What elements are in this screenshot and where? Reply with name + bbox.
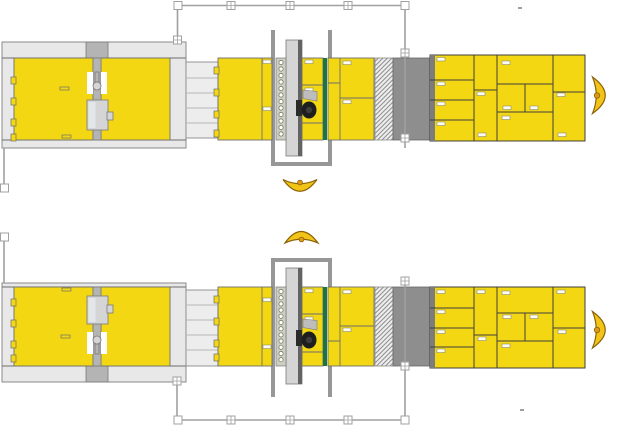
rotation-indicator: [283, 180, 317, 192]
layout-svg: [0, 0, 638, 446]
buffer-panel: [218, 58, 272, 140]
press-panel-left: [14, 58, 93, 140]
rail-corner: [401, 2, 409, 10]
press-carriage-inner: [89, 102, 96, 128]
press-head-block: [86, 366, 108, 382]
edge-tab: [11, 134, 16, 141]
rail-clamp: [286, 2, 294, 10]
edge-tab: [214, 340, 219, 347]
anchor-square: [1, 233, 9, 241]
drill-hole: [279, 320, 283, 324]
drill-hole: [279, 112, 283, 116]
rail-corner: [174, 2, 182, 10]
clamp-block: [296, 100, 302, 116]
label-tick: [305, 289, 313, 293]
panel-buffer: [214, 58, 272, 140]
drill-hole: [279, 314, 283, 318]
panel-slot: [61, 335, 70, 338]
drilling-gantry-station: [276, 40, 327, 156]
drill-hole: [279, 358, 283, 362]
edge-tab: [214, 318, 219, 325]
drill-hole: [279, 302, 283, 306]
press-head-block: [86, 42, 108, 58]
edge-tab: [11, 355, 16, 362]
outfeed-panels: [328, 58, 374, 140]
turning-device: [593, 77, 606, 114]
rotation-hub: [299, 237, 304, 242]
stray-mark: [520, 409, 524, 411]
edge-tab: [11, 299, 16, 306]
drilling-gantry-station: [276, 268, 327, 384]
coil-section: [375, 58, 393, 140]
press-bob: [93, 336, 101, 344]
drill-hole: [279, 60, 283, 64]
spindle-motor-cap: [306, 107, 312, 113]
panel-buffer: [214, 287, 272, 366]
gantry-top-bar: [271, 258, 332, 262]
rotation-indicator: [285, 232, 318, 244]
drill-hole: [279, 289, 283, 293]
outfeed-panel-group: [328, 287, 374, 366]
anchor-square: [1, 184, 9, 192]
edge-tab: [11, 119, 16, 126]
label-tick: [263, 60, 271, 64]
drill-hole: [279, 119, 283, 123]
nested-panel-stack: [430, 287, 585, 368]
roller-conveyor: [186, 62, 218, 138]
feeding-press: [2, 283, 186, 382]
label-tick: [343, 100, 351, 104]
drill-hole: [279, 132, 283, 136]
press-panel-right: [101, 58, 170, 140]
gantry-bottom-bar: [271, 162, 332, 166]
conveyor-bed: [186, 62, 218, 138]
press-panel-left: [14, 287, 93, 366]
press-neck: [95, 72, 99, 82]
rail-clamp: [173, 377, 181, 385]
drill-hole: [279, 345, 283, 349]
rail-corner: [174, 416, 182, 424]
outfeed-panels: [328, 287, 374, 366]
turning-device: [593, 312, 606, 349]
label-tick: [343, 290, 351, 294]
tool-beam-rail: [298, 268, 302, 384]
panel-slot: [60, 87, 69, 90]
roller-conveyor: [186, 290, 218, 366]
rail-clamp: [401, 134, 409, 142]
turning-hub: [594, 327, 599, 332]
rail-clamp: [227, 2, 235, 10]
press-notch-right: [101, 332, 107, 354]
drill-hole: [279, 67, 283, 71]
drill-hole: [279, 351, 283, 355]
press-bob: [93, 82, 101, 90]
factory-layout-diagram: [0, 0, 638, 446]
drill-hole: [279, 73, 283, 77]
label-tick: [263, 298, 271, 302]
edge-tab: [214, 89, 219, 96]
tool-beam-rail: [298, 40, 302, 156]
label-tick: [343, 61, 351, 65]
drill-hole: [279, 99, 283, 103]
edge-tab: [214, 67, 219, 74]
rail-clamp: [401, 277, 409, 285]
edge-tab: [214, 354, 219, 361]
edge-tab: [11, 320, 16, 327]
press-carriage-tab: [107, 305, 113, 313]
rail-clamp: [227, 416, 235, 424]
press-notch-right: [101, 72, 107, 94]
panel-slot: [62, 135, 71, 138]
panel-slot: [62, 288, 71, 291]
feeding-press: [2, 42, 186, 148]
drill-hole: [279, 308, 283, 312]
rail-clamp: [401, 362, 409, 370]
production-line-1: [1, 2, 606, 193]
press-carriage-tab: [107, 112, 113, 120]
coil-bellows: [375, 287, 393, 366]
label-tick: [305, 60, 313, 64]
rail-corner: [401, 416, 409, 424]
rail-clamp: [344, 416, 352, 424]
label-tick: [263, 345, 271, 349]
production-line-2: [1, 232, 606, 425]
spindle-motor-cap: [306, 337, 312, 343]
label-tick: [343, 328, 351, 332]
stray-mark: [518, 7, 522, 9]
coil-section: [375, 287, 393, 366]
drill-hole: [279, 125, 283, 129]
drill-hole: [279, 327, 283, 331]
rail-clamp: [344, 2, 352, 10]
label-tick: [263, 107, 271, 111]
outfeed-panel-group: [328, 58, 374, 140]
conveyor-bed: [186, 290, 218, 366]
rail-clamp: [401, 49, 409, 57]
edge-tab: [11, 341, 16, 348]
edge-tab: [214, 111, 219, 118]
edge-tab: [214, 130, 219, 137]
clamp-block: [296, 330, 302, 346]
edge-tab: [11, 77, 16, 84]
transfer-block: [393, 287, 430, 366]
rotation-hub: [298, 180, 303, 185]
green-marker-strip: [323, 287, 327, 366]
rail-clamp: [286, 416, 294, 424]
edge-tab: [11, 98, 16, 105]
nested-panel-stack: [430, 55, 585, 141]
press-carriage-inner: [89, 298, 96, 322]
drill-hole: [279, 86, 283, 90]
drill-hole: [279, 106, 283, 110]
press-neck: [95, 344, 99, 354]
drill-hole: [279, 333, 283, 337]
drill-hole: [279, 296, 283, 300]
drill-hole: [279, 93, 283, 97]
press-panel-right: [101, 287, 170, 366]
stack-board: [430, 55, 585, 141]
turning-hub: [594, 93, 599, 98]
edge-tab: [214, 296, 219, 303]
stack-edge-strip: [430, 55, 435, 141]
drill-hole: [279, 80, 283, 84]
press-notch-left: [87, 72, 93, 94]
rail-clamp: [174, 36, 182, 44]
press-notch-left: [87, 332, 93, 354]
coil-bellows: [375, 58, 393, 140]
transfer-block: [393, 58, 430, 140]
drill-hole: [279, 339, 283, 343]
green-marker-strip: [323, 58, 327, 140]
